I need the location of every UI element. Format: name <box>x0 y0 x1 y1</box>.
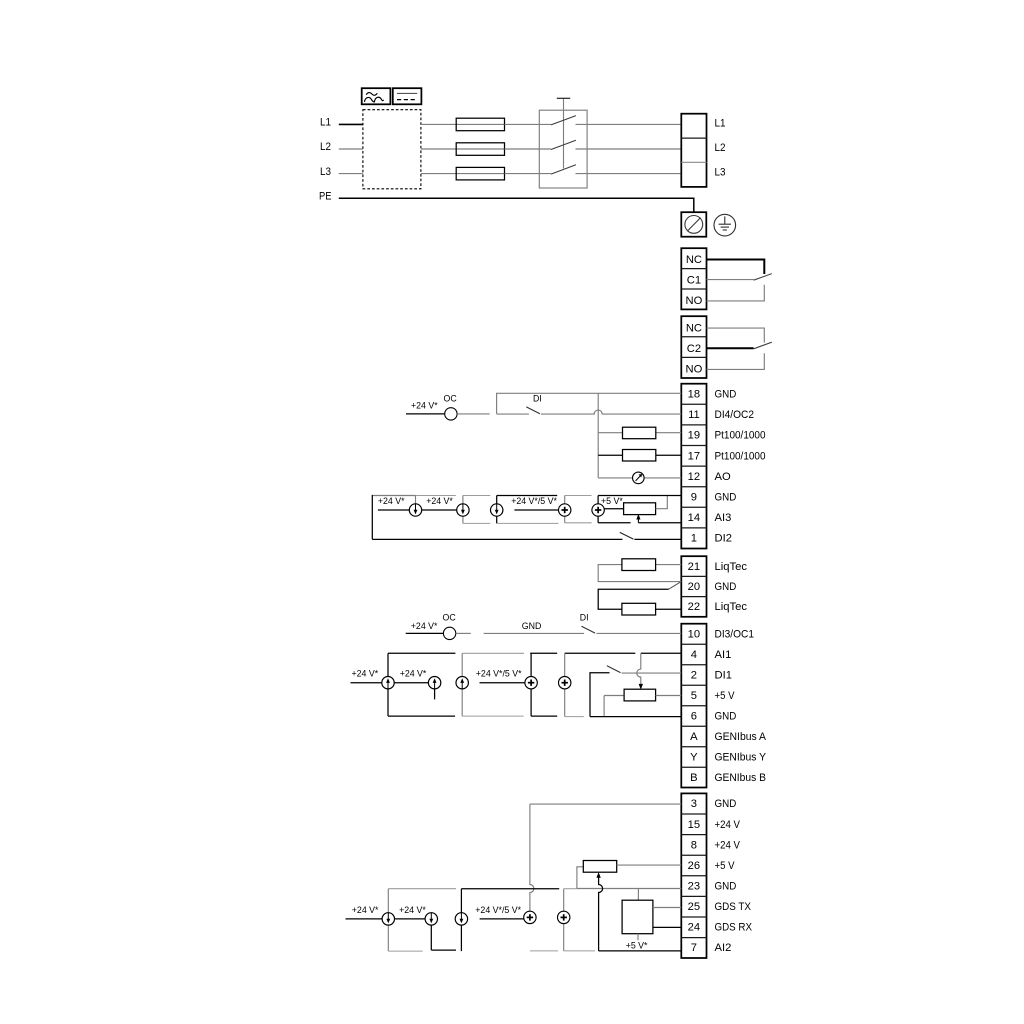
svg-text:B: B <box>690 772 697 784</box>
svg-text:10: 10 <box>688 628 700 640</box>
svg-text:DI4/OC2: DI4/OC2 <box>715 409 755 421</box>
svg-text:NC: NC <box>686 254 702 266</box>
svg-text:GENIbus Y: GENIbus Y <box>715 751 767 763</box>
svg-text:+24 V*: +24 V* <box>400 668 427 678</box>
svg-text:+24 V*: +24 V* <box>352 668 379 678</box>
svg-text:DI1: DI1 <box>715 669 732 681</box>
svg-text:8: 8 <box>691 839 697 851</box>
svg-text:AO: AO <box>715 471 731 483</box>
svg-text:20: 20 <box>688 581 700 593</box>
svg-text:15: 15 <box>688 819 700 831</box>
svg-text:C2: C2 <box>687 343 701 355</box>
svg-text:Pt100/1000: Pt100/1000 <box>715 450 766 462</box>
svg-text:PE: PE <box>319 190 332 202</box>
svg-text:2: 2 <box>691 669 697 681</box>
svg-text:5: 5 <box>691 690 697 702</box>
svg-text:+24 V*: +24 V* <box>352 905 379 915</box>
svg-text:GND: GND <box>715 492 737 504</box>
svg-text:GND: GND <box>715 710 737 722</box>
svg-text:1: 1 <box>691 533 697 545</box>
svg-text:C1: C1 <box>687 275 701 287</box>
svg-text:NO: NO <box>686 295 703 307</box>
svg-text:AI2: AI2 <box>715 942 732 954</box>
svg-text:Pt100/1000: Pt100/1000 <box>715 430 766 442</box>
svg-text:L3: L3 <box>320 166 331 178</box>
svg-text:+24 V*: +24 V* <box>378 496 405 506</box>
svg-text:7: 7 <box>691 942 697 954</box>
svg-text:+24 V*/5 V*: +24 V*/5 V* <box>476 668 522 678</box>
svg-text:17: 17 <box>688 450 700 462</box>
svg-text:+5 V*: +5 V* <box>626 941 648 951</box>
svg-text:GENIbus B: GENIbus B <box>715 772 767 784</box>
svg-text:Y: Y <box>690 751 698 763</box>
svg-text:DI3/OC1: DI3/OC1 <box>715 628 755 640</box>
svg-text:OC: OC <box>443 613 457 623</box>
svg-text:21: 21 <box>688 561 700 573</box>
svg-text:L2: L2 <box>715 142 726 154</box>
svg-text:AI1: AI1 <box>715 649 732 661</box>
svg-text:24: 24 <box>688 922 700 934</box>
svg-text:4: 4 <box>691 649 697 661</box>
svg-text:L1: L1 <box>715 117 726 129</box>
svg-text:GDS RX: GDS RX <box>715 922 753 934</box>
svg-text:9: 9 <box>691 492 697 504</box>
svg-text:AI3: AI3 <box>715 512 732 524</box>
svg-text:GENIbus A: GENIbus A <box>715 731 767 743</box>
svg-text:+5 V: +5 V <box>715 860 735 872</box>
svg-text:19: 19 <box>688 430 700 442</box>
svg-text:+5 V: +5 V <box>715 690 735 702</box>
svg-text:L1: L1 <box>320 117 331 129</box>
svg-text:GND: GND <box>715 881 737 893</box>
svg-text:GDS TX: GDS TX <box>715 901 752 913</box>
svg-text:+24 V*: +24 V* <box>426 496 453 506</box>
svg-text:DI2: DI2 <box>715 533 732 545</box>
svg-text:14: 14 <box>688 512 700 524</box>
svg-text:+24 V*/5 V*: +24 V*/5 V* <box>475 905 521 915</box>
svg-text:23: 23 <box>688 881 700 893</box>
svg-text:+24 V: +24 V <box>715 839 741 851</box>
svg-text:GND: GND <box>715 798 737 810</box>
svg-text:GND: GND <box>522 621 542 631</box>
svg-text:L3: L3 <box>715 166 726 178</box>
svg-text:18: 18 <box>688 389 700 401</box>
svg-text:+24 V*: +24 V* <box>411 400 438 410</box>
svg-text:22: 22 <box>688 601 700 613</box>
svg-text:+24 V*: +24 V* <box>399 905 426 915</box>
svg-text:L2: L2 <box>320 141 331 153</box>
svg-text:3: 3 <box>691 798 697 810</box>
svg-text:NO: NO <box>686 364 703 376</box>
svg-text:A: A <box>690 731 698 743</box>
svg-text:LiqTec: LiqTec <box>715 601 748 613</box>
svg-text:+5 V*: +5 V* <box>601 496 623 506</box>
svg-text:NC: NC <box>686 323 702 335</box>
svg-text:25: 25 <box>688 901 700 913</box>
svg-text:11: 11 <box>688 409 700 421</box>
svg-text:+24 V*/5 V*: +24 V*/5 V* <box>511 496 557 506</box>
svg-text:26: 26 <box>688 860 700 872</box>
svg-text:OC: OC <box>444 393 458 403</box>
svg-text:+24 V: +24 V <box>715 819 741 831</box>
svg-text:GND: GND <box>715 581 737 593</box>
svg-text:DI: DI <box>533 393 542 403</box>
svg-text:DI: DI <box>580 613 589 623</box>
svg-text:LiqTec: LiqTec <box>715 561 748 573</box>
svg-text:GND: GND <box>715 389 737 401</box>
svg-text:12: 12 <box>688 471 700 483</box>
svg-text:6: 6 <box>691 710 697 722</box>
svg-text:+24 V*: +24 V* <box>411 621 438 631</box>
